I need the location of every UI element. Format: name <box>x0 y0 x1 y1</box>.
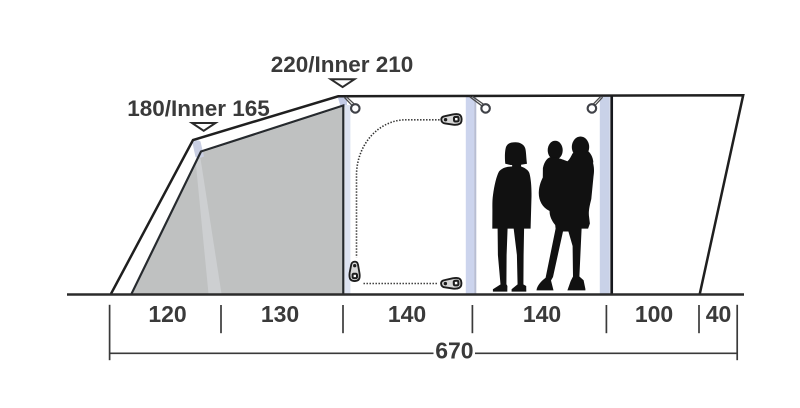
svg-text:140: 140 <box>523 301 561 327</box>
svg-text:40: 40 <box>706 301 732 327</box>
svg-text:100: 100 <box>635 301 673 327</box>
svg-text:220/Inner 210: 220/Inner 210 <box>271 52 414 77</box>
svg-text:120: 120 <box>148 301 186 327</box>
svg-text:140: 140 <box>388 301 426 327</box>
svg-text:180/Inner 165: 180/Inner 165 <box>127 96 270 121</box>
svg-text:670: 670 <box>435 338 473 364</box>
svg-text:130: 130 <box>261 301 299 327</box>
